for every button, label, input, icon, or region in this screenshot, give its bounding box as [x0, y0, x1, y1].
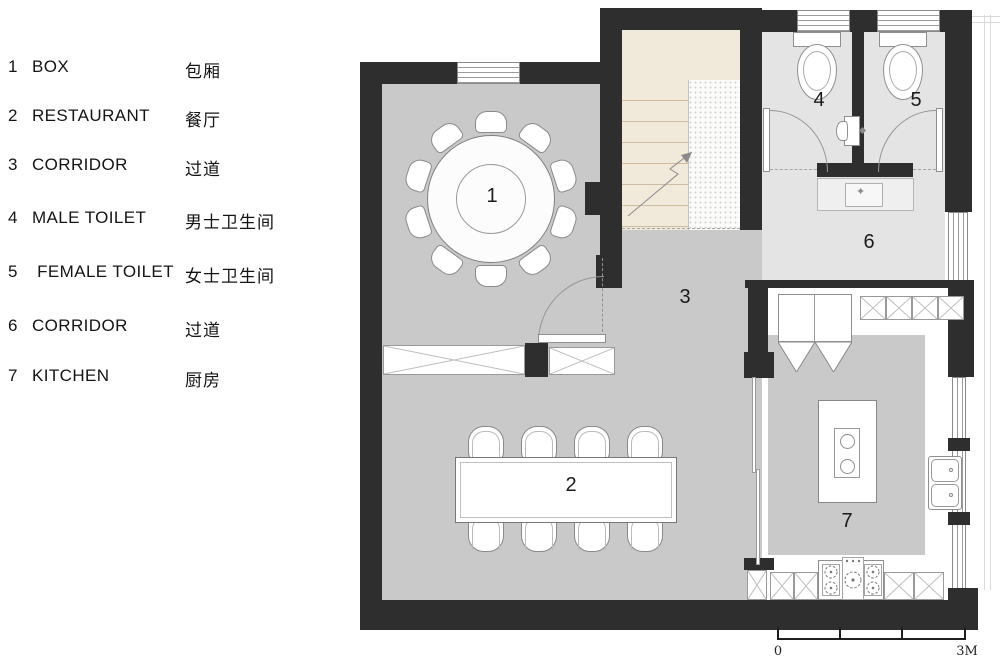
kitchen-counter — [770, 572, 794, 600]
burner — [840, 434, 855, 449]
window — [457, 62, 520, 84]
wall — [745, 280, 974, 288]
wall — [740, 8, 762, 230]
fridge — [778, 294, 852, 342]
scale-max-label: 3M — [950, 644, 984, 659]
wall — [850, 10, 877, 32]
room-label-female-toilet: 5 — [905, 89, 927, 112]
stair-threshold — [622, 228, 740, 229]
wall — [600, 8, 762, 30]
room-label-kitchen: 7 — [836, 510, 858, 533]
wall — [948, 512, 970, 525]
room-label-box: 1 — [481, 185, 503, 208]
wall — [360, 62, 457, 84]
stair-direction-arrow — [622, 140, 740, 230]
kitchen-cabinet — [747, 570, 767, 600]
exterior-line — [972, 22, 1000, 23]
window — [948, 212, 968, 282]
wall — [852, 32, 864, 172]
sideboard-cabinet — [549, 347, 615, 375]
exterior-line — [990, 15, 991, 590]
scale-bar-tick — [777, 627, 779, 640]
scale-bar-line — [778, 638, 966, 640]
chair — [475, 111, 507, 133]
column — [585, 182, 622, 215]
wall — [520, 62, 600, 84]
wall — [948, 438, 970, 451]
sink-drain — [949, 468, 953, 472]
column — [525, 343, 548, 377]
door-threshold — [770, 169, 817, 170]
wall — [748, 288, 768, 356]
exterior-line — [972, 16, 1000, 17]
room-label-restaurant: 2 — [560, 474, 582, 497]
kitchen-counter — [886, 296, 912, 320]
door-leaf — [763, 108, 770, 172]
room-label-corridor6: 6 — [858, 231, 880, 254]
column — [744, 352, 774, 378]
kitchen-counter — [914, 572, 944, 600]
door-leaf — [936, 108, 943, 172]
wall — [360, 62, 382, 630]
fridge-divider — [814, 294, 815, 342]
wall — [948, 588, 978, 602]
scale-bar-tick — [964, 627, 966, 640]
sideboard-cabinet — [383, 345, 525, 375]
kitchen-counter — [912, 296, 938, 320]
kitchen-counter — [860, 296, 886, 320]
fridge-door-swing — [778, 342, 852, 372]
room-label-male-toilet: 4 — [808, 89, 830, 112]
sink-basin — [931, 459, 959, 482]
urinal-bowl — [836, 121, 848, 141]
sink-drain — [949, 493, 953, 497]
scale-zero-label: 0 — [770, 644, 786, 659]
kitchen-counter — [938, 296, 964, 320]
door-threshold — [913, 169, 936, 170]
chair — [475, 265, 507, 287]
faucet-icon: ✦ — [856, 185, 865, 198]
scale-bar: 0 3M — [760, 620, 990, 668]
burner — [840, 459, 855, 474]
sliding-door-panel — [756, 469, 760, 565]
window — [877, 10, 940, 32]
kitchen-counter — [794, 572, 818, 600]
wall — [600, 230, 622, 258]
room-label-corridor3: 3 — [674, 286, 696, 309]
door-leaf — [538, 334, 606, 343]
scale-bar-tick — [901, 627, 903, 640]
wall — [762, 10, 797, 32]
kitchen-counter — [884, 572, 914, 600]
floor-plan: 1 2 3 4 5 ✦ 6 — [0, 0, 1000, 668]
exterior-line — [984, 15, 985, 590]
scale-bar-tick — [839, 627, 841, 640]
wall — [945, 10, 972, 212]
window — [797, 10, 850, 32]
stove-burners — [818, 554, 888, 606]
sliding-door-panel — [752, 377, 756, 473]
sink-basin — [931, 484, 959, 507]
